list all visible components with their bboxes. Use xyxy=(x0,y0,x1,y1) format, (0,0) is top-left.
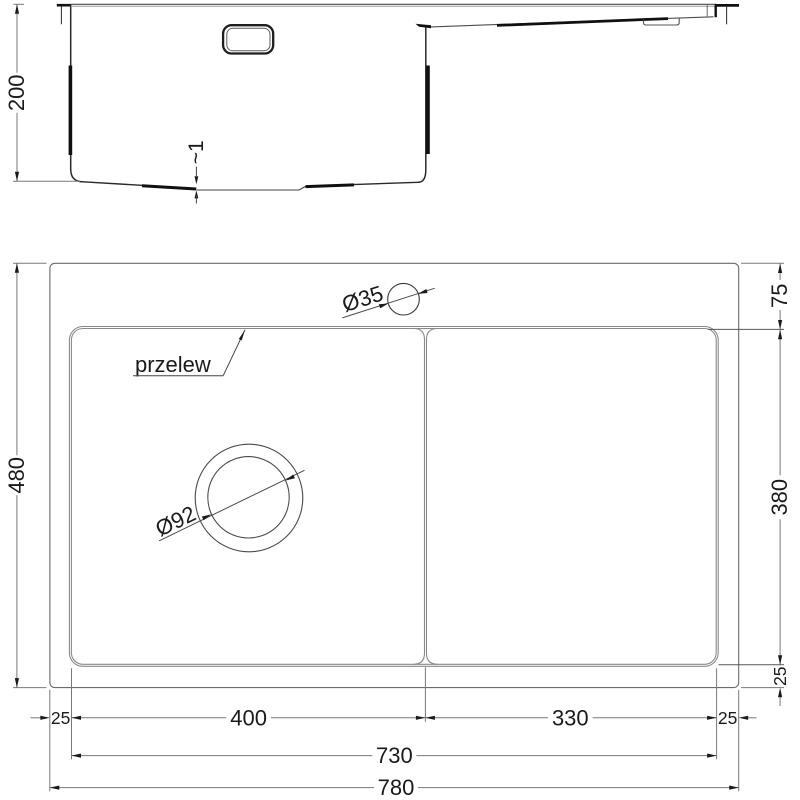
svg-text:400: 400 xyxy=(230,705,267,730)
svg-text:25: 25 xyxy=(51,708,70,728)
svg-text:~1: ~1 xyxy=(185,140,208,164)
svg-text:380: 380 xyxy=(767,479,792,516)
svg-text:730: 730 xyxy=(376,743,413,768)
svg-text:330: 330 xyxy=(552,705,589,730)
svg-text:przelew: przelew xyxy=(135,352,211,377)
svg-text:480: 480 xyxy=(4,457,29,494)
svg-text:200: 200 xyxy=(4,74,29,111)
svg-text:25: 25 xyxy=(770,666,790,685)
svg-text:75: 75 xyxy=(767,284,792,308)
svg-text:780: 780 xyxy=(378,775,415,800)
svg-text:25: 25 xyxy=(718,708,737,728)
